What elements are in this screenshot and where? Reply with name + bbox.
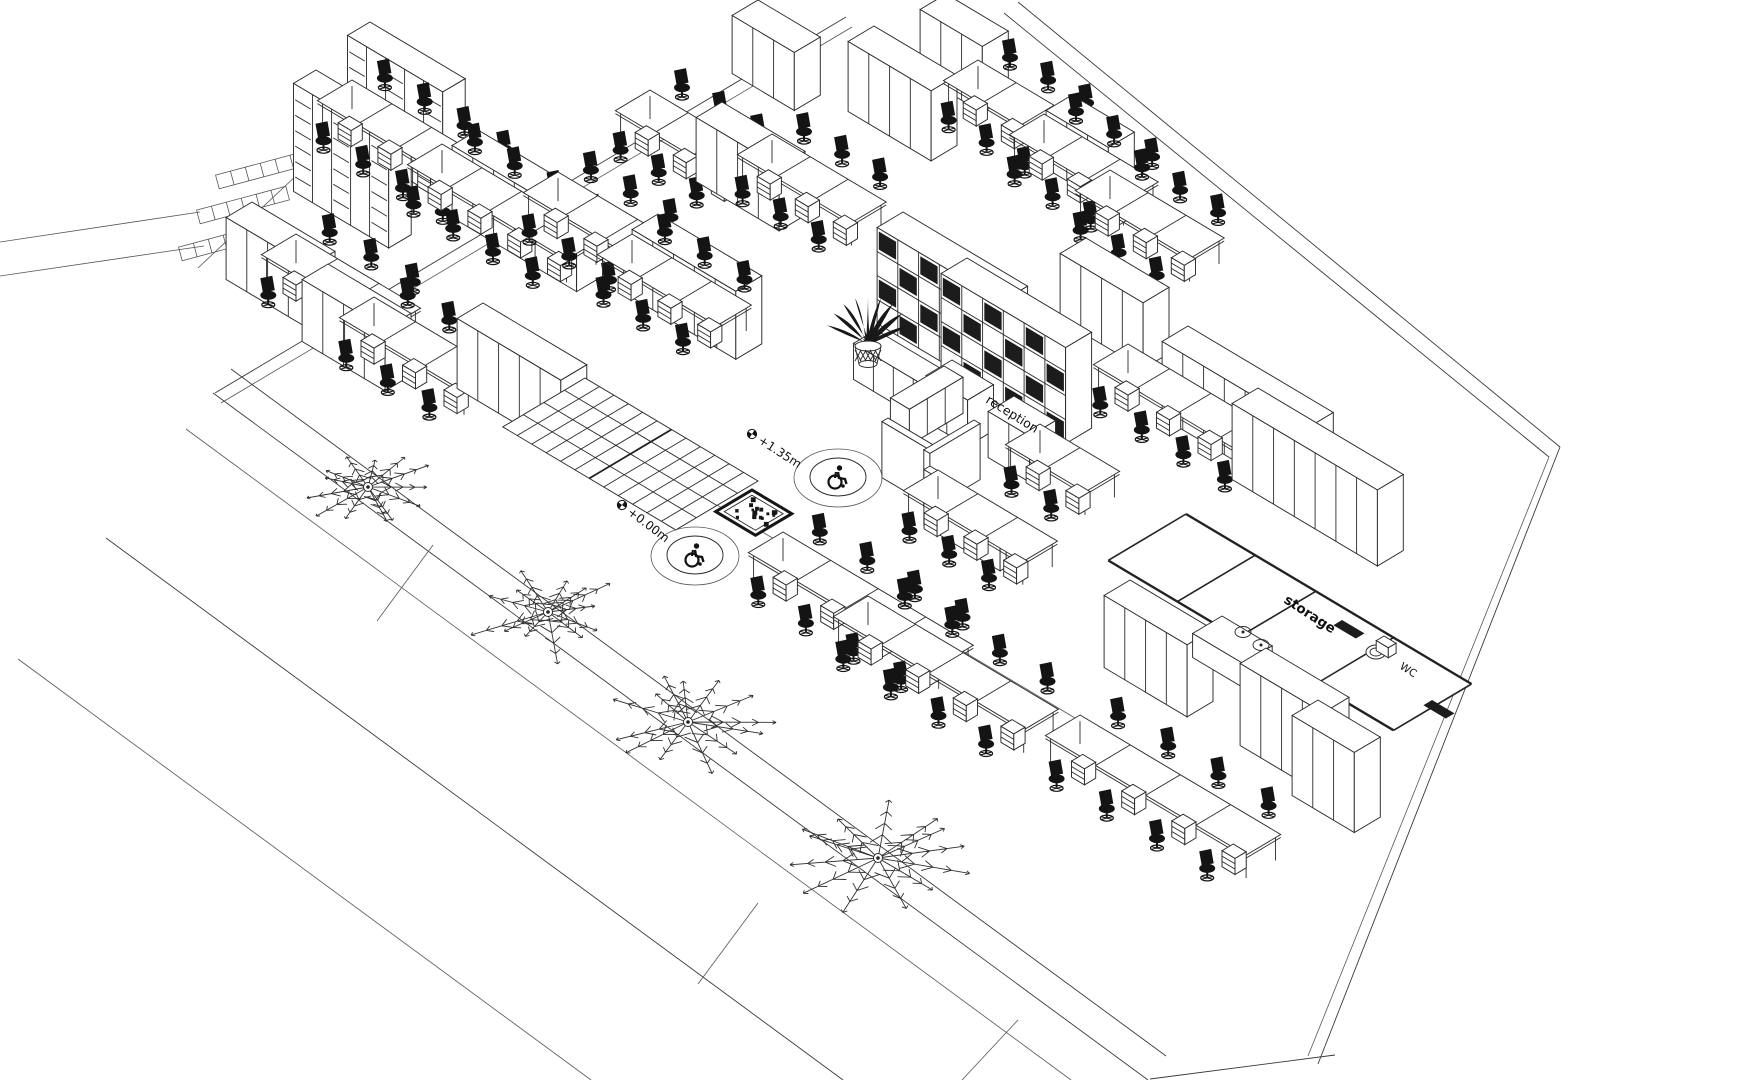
level-upper-label: +1.35m: [756, 433, 804, 471]
office-floorplan-drawing: +1.35m +0.00m reception storage WC: [0, 0, 1755, 1080]
desk-cluster: [833, 577, 1058, 757]
level-marker-icon: [746, 428, 759, 441]
floorplan-canvas: +1.35m +0.00m reception storage WC: [0, 0, 1755, 1080]
palm-tree: [613, 676, 776, 773]
palm-tree: [471, 571, 610, 664]
level-marker-upper: +1.35m: [744, 426, 804, 472]
palm-tree: [307, 457, 429, 522]
furniture-layer: [226, 0, 1471, 912]
cabinet: [732, 0, 820, 111]
cabinet: [1292, 700, 1380, 833]
wheelchair-icon: [794, 449, 882, 507]
palm-tree: [790, 800, 970, 912]
